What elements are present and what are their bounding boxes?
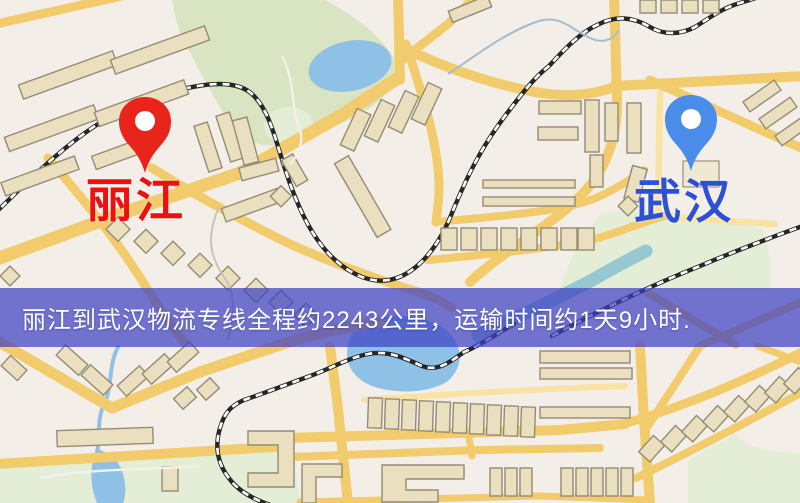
route-info-banner: 丽江到武汉物流专线全程约2243公里，运输时间约1天9小时. [0,288,800,347]
wuhan-pin-icon[interactable] [663,93,719,173]
lijiang-pin-icon[interactable] [117,95,173,175]
map-canvas[interactable] [0,0,800,503]
pin-body [119,97,171,173]
wuhan-label: 武汉 [634,178,734,225]
lijiang-label: 丽江 [86,177,186,224]
pin-hole [681,109,701,129]
route-info-text: 丽江到武汉物流专线全程约2243公里，运输时间约1天9小时. [0,300,691,335]
pin-hole [135,111,155,131]
pin-body [665,95,717,171]
map-screenshot: 丽江 武汉 丽江到武汉物流专线全程约2243公里，运输时间约1天9小时. [0,0,800,503]
